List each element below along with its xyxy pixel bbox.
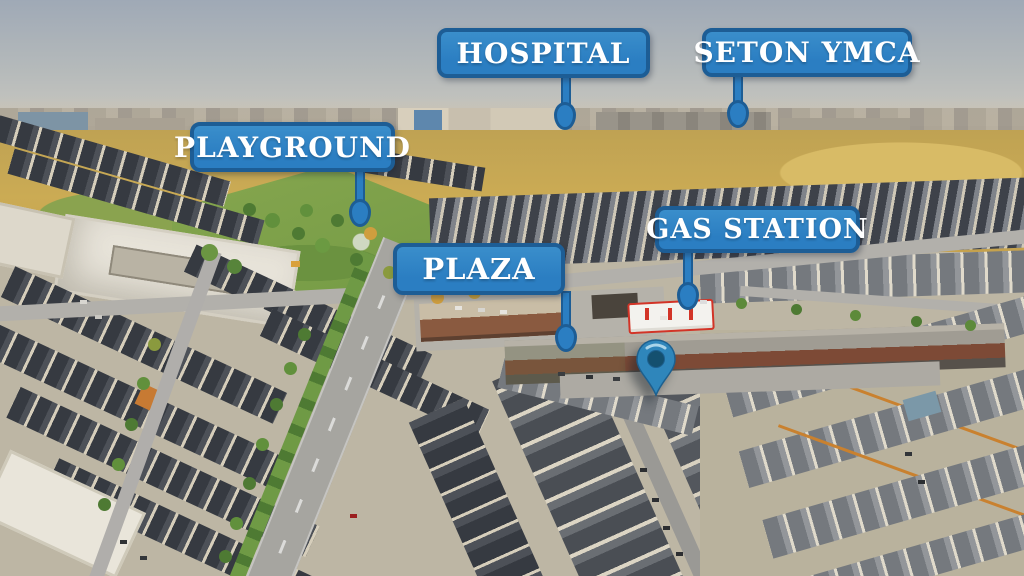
callout-hospital: HOSPITAL <box>437 28 650 78</box>
callout-label-box: HOSPITAL <box>437 28 650 78</box>
callout-label-box: PLAYGROUND <box>190 122 395 172</box>
callout-label-box: SETON YMCA <box>702 28 912 77</box>
gas-pump-island <box>645 308 649 320</box>
location-pin-icon <box>635 338 677 398</box>
callout-label-text: SETON YMCA <box>693 36 920 69</box>
callout-label-text: PLAZA <box>422 252 535 286</box>
callout-label-box: PLAZA <box>393 243 565 295</box>
callout-label-text: PLAYGROUND <box>174 131 411 164</box>
callout-playground: PLAYGROUND <box>190 122 395 172</box>
hospital-glass-tower <box>414 110 442 131</box>
gas-pump-island <box>668 308 672 320</box>
annotated-aerial-map: HOSPITAL SETON YMCA PLAYGROUND PLAZA GAS… <box>0 0 1024 576</box>
plaza-building <box>419 296 571 342</box>
vehicles <box>0 0 7 4</box>
callout-label-text: HOSPITAL <box>457 37 631 70</box>
callout-seton-ymca: SETON YMCA <box>702 28 912 77</box>
callout-gas-station: GAS STATION <box>655 206 860 253</box>
callout-label-text: GAS STATION <box>646 214 868 245</box>
callout-label-box: GAS STATION <box>655 206 860 253</box>
callout-plaza: PLAZA <box>393 243 565 295</box>
